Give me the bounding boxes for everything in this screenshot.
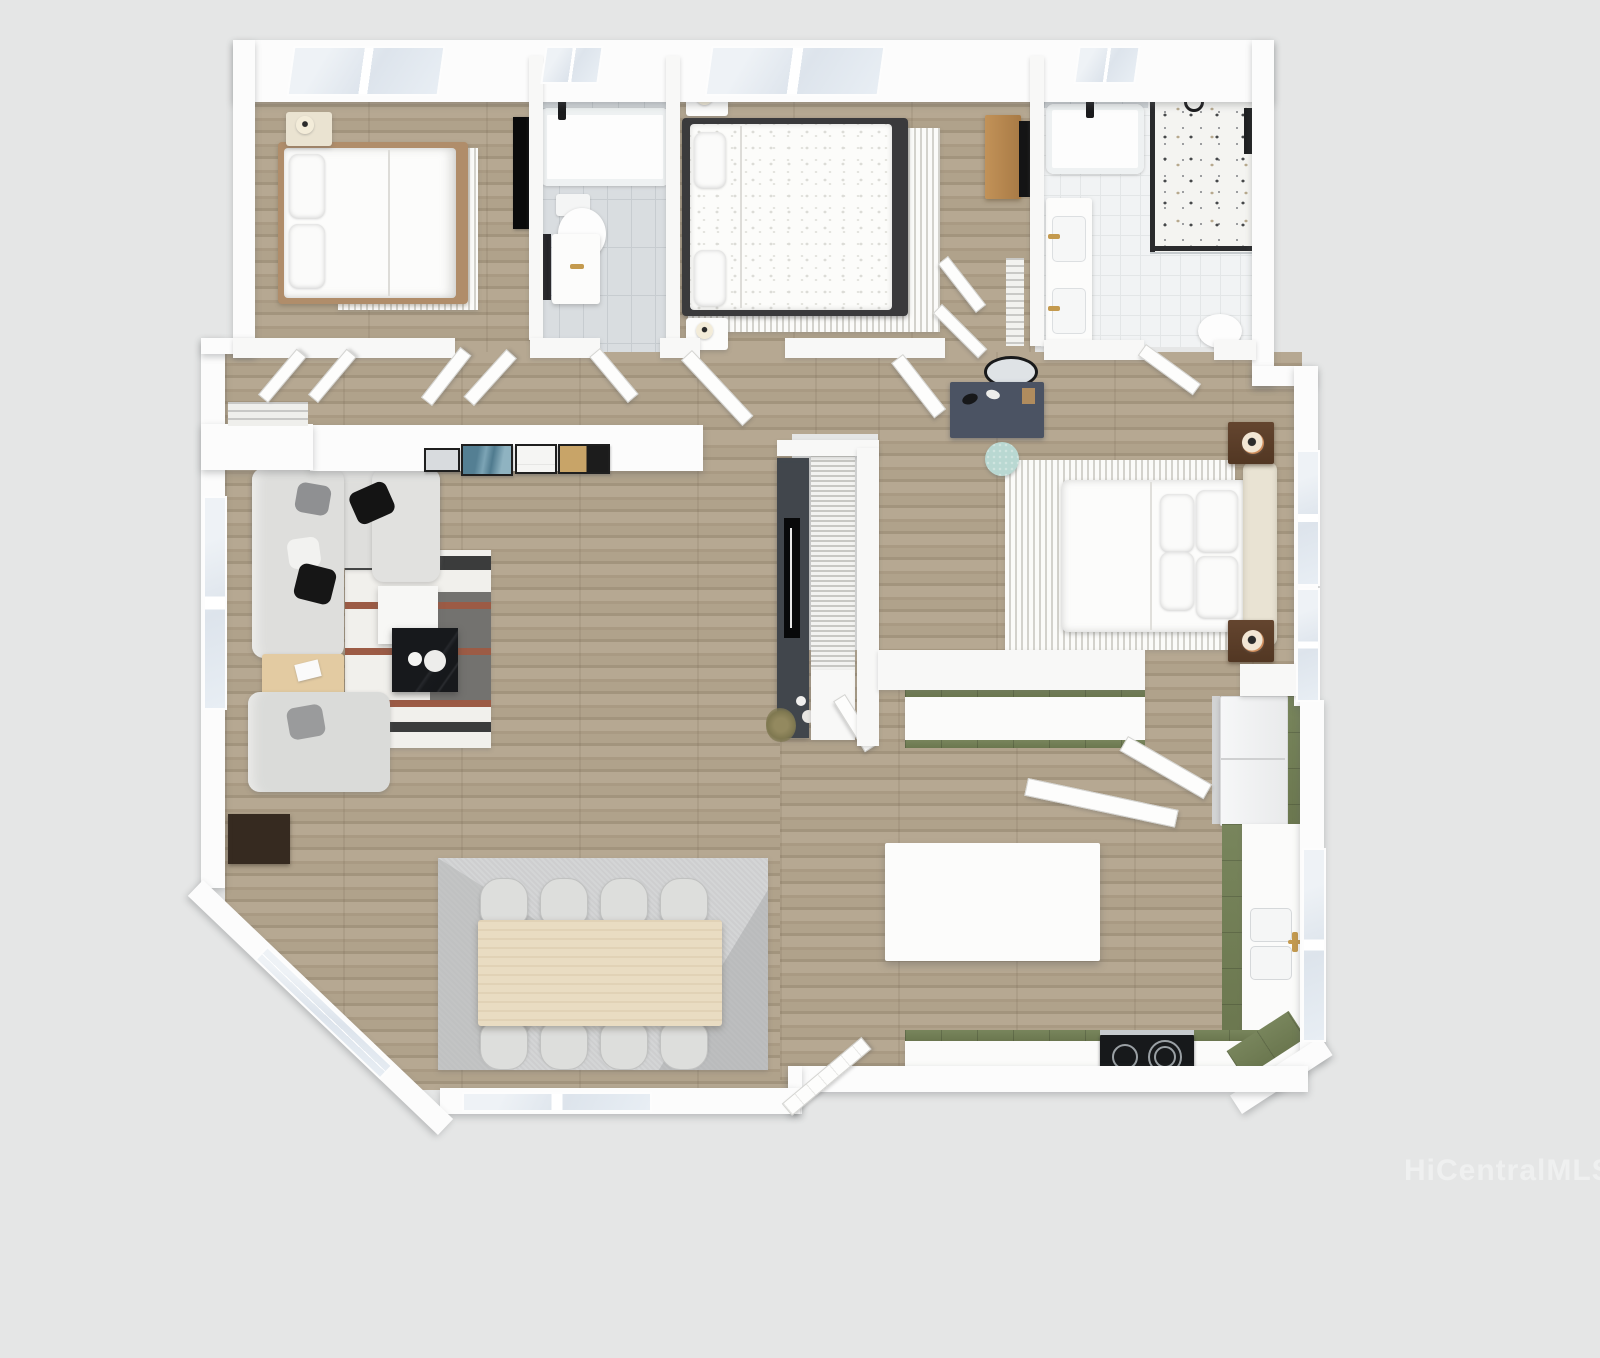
bedroom2-closet-shelf [1006,258,1024,346]
left-exterior-wall-upper [233,40,255,356]
bedroom1-pillow [289,224,325,288]
bedroom2-window [704,46,885,96]
masterbath-south-wall [1044,340,1144,360]
coffee-cup [408,652,422,666]
hall-closet-wall [201,424,313,470]
coffee-tray [424,650,446,672]
bath-bedroom2-wall [666,56,680,340]
gallery-art-split [558,444,610,474]
gallery-art-sketch [424,448,460,472]
bedroom1-bath-wall [529,56,543,340]
dining-chair [540,1022,588,1070]
bottom-kitchen-wall [790,1066,1308,1092]
hall-closet-shelving [228,402,308,426]
console-vase [796,696,806,706]
master-table-lamp [1242,432,1264,454]
masterbath-window [1073,46,1140,84]
sofa-pillow-gray [294,481,333,516]
dining-chair [480,878,528,926]
bedroom1-window [286,46,445,96]
dining-chair [660,1022,708,1070]
kitchen-island [885,843,1100,961]
console-tv-glint [790,528,792,628]
living-left-window [203,496,227,710]
dining-window [462,1092,652,1112]
gallery-art-teal [461,444,513,476]
right-cabinet-front [1222,824,1242,1040]
bedroom2-masterbath-wall [1030,56,1044,346]
plant [766,708,796,742]
master-vanity-faucet [1048,234,1060,239]
dining-chair [600,878,648,926]
bedroom2-dresser [985,115,1021,199]
gallery-art-white [515,444,557,474]
master-duvet-fold [1150,482,1152,630]
right-exterior-wall-upper [1252,40,1274,386]
bedroom1-table-lamp [296,116,314,134]
kitchen-window [1302,848,1326,1042]
refrigerator-side [1212,696,1220,824]
master-bath-bathtub [1046,104,1144,174]
refrigerator [1220,696,1288,826]
master-pillow [1160,494,1194,552]
bedroom1-duvet-fold [388,150,390,296]
peninsula-counter [905,697,1145,740]
cooktop-burner [1154,1046,1176,1068]
master-headboard [1243,462,1277,646]
kitchen-sink-basin [1250,946,1292,980]
bathtub-faucet-icon [558,100,566,120]
slatted-closet-doors [811,452,855,670]
shower-frame-bottom [1150,246,1264,251]
master-south-wall [878,650,1145,690]
master-table-lamp [1242,630,1264,652]
bedroom1-pillow [289,154,325,218]
master-window [1296,588,1320,702]
dining-chair [660,878,708,926]
armchair-pillow-gray [285,703,326,741]
refrigerator-door-line [1221,758,1285,760]
watermark: HiCentralMLS [1404,1154,1600,1188]
bedroom2-duvet-fold [740,126,742,308]
dining-chair [480,1022,528,1070]
master-pillow [1196,556,1238,618]
dining-chair [600,1022,648,1070]
master-stool [985,442,1019,476]
console-tv [784,518,800,638]
floor-plan-render: { "watermark": { "text": "HiCentralMLS",… [0,0,1600,1200]
bedroom2-table-lamp [696,322,713,339]
hallway-floor [225,352,905,434]
master-vanity-faucet [1048,306,1060,311]
bedroom2-pillow [694,132,726,188]
dark-cabinet [228,814,290,864]
hallway-north-wall [785,338,945,358]
bathroom1-gold-faucet [570,264,584,269]
bathroom1-mirror [543,234,551,300]
bathroom1-vanity [552,234,600,304]
kitchen-sink-basin [1250,908,1292,942]
bedroom1-wall-tv [513,117,529,229]
masterbath-south-wall [1214,340,1256,360]
master-closet-wall [857,448,879,746]
bedroom2-pillow [694,250,726,306]
cooktop-trim [1100,1030,1194,1035]
shower-frame-left [1150,96,1155,252]
bathroom1-window [540,46,603,84]
master-window [1296,450,1320,586]
peninsula-cabinet-back [905,740,1145,748]
dining-table [478,920,722,1026]
dining-chair [540,878,588,926]
master-pillow [1196,490,1238,552]
desk-decor-wood [1022,388,1035,404]
master-pillow [1160,552,1194,610]
master-vanity-sink [1052,288,1086,334]
master-vanity-sink [1052,216,1086,262]
